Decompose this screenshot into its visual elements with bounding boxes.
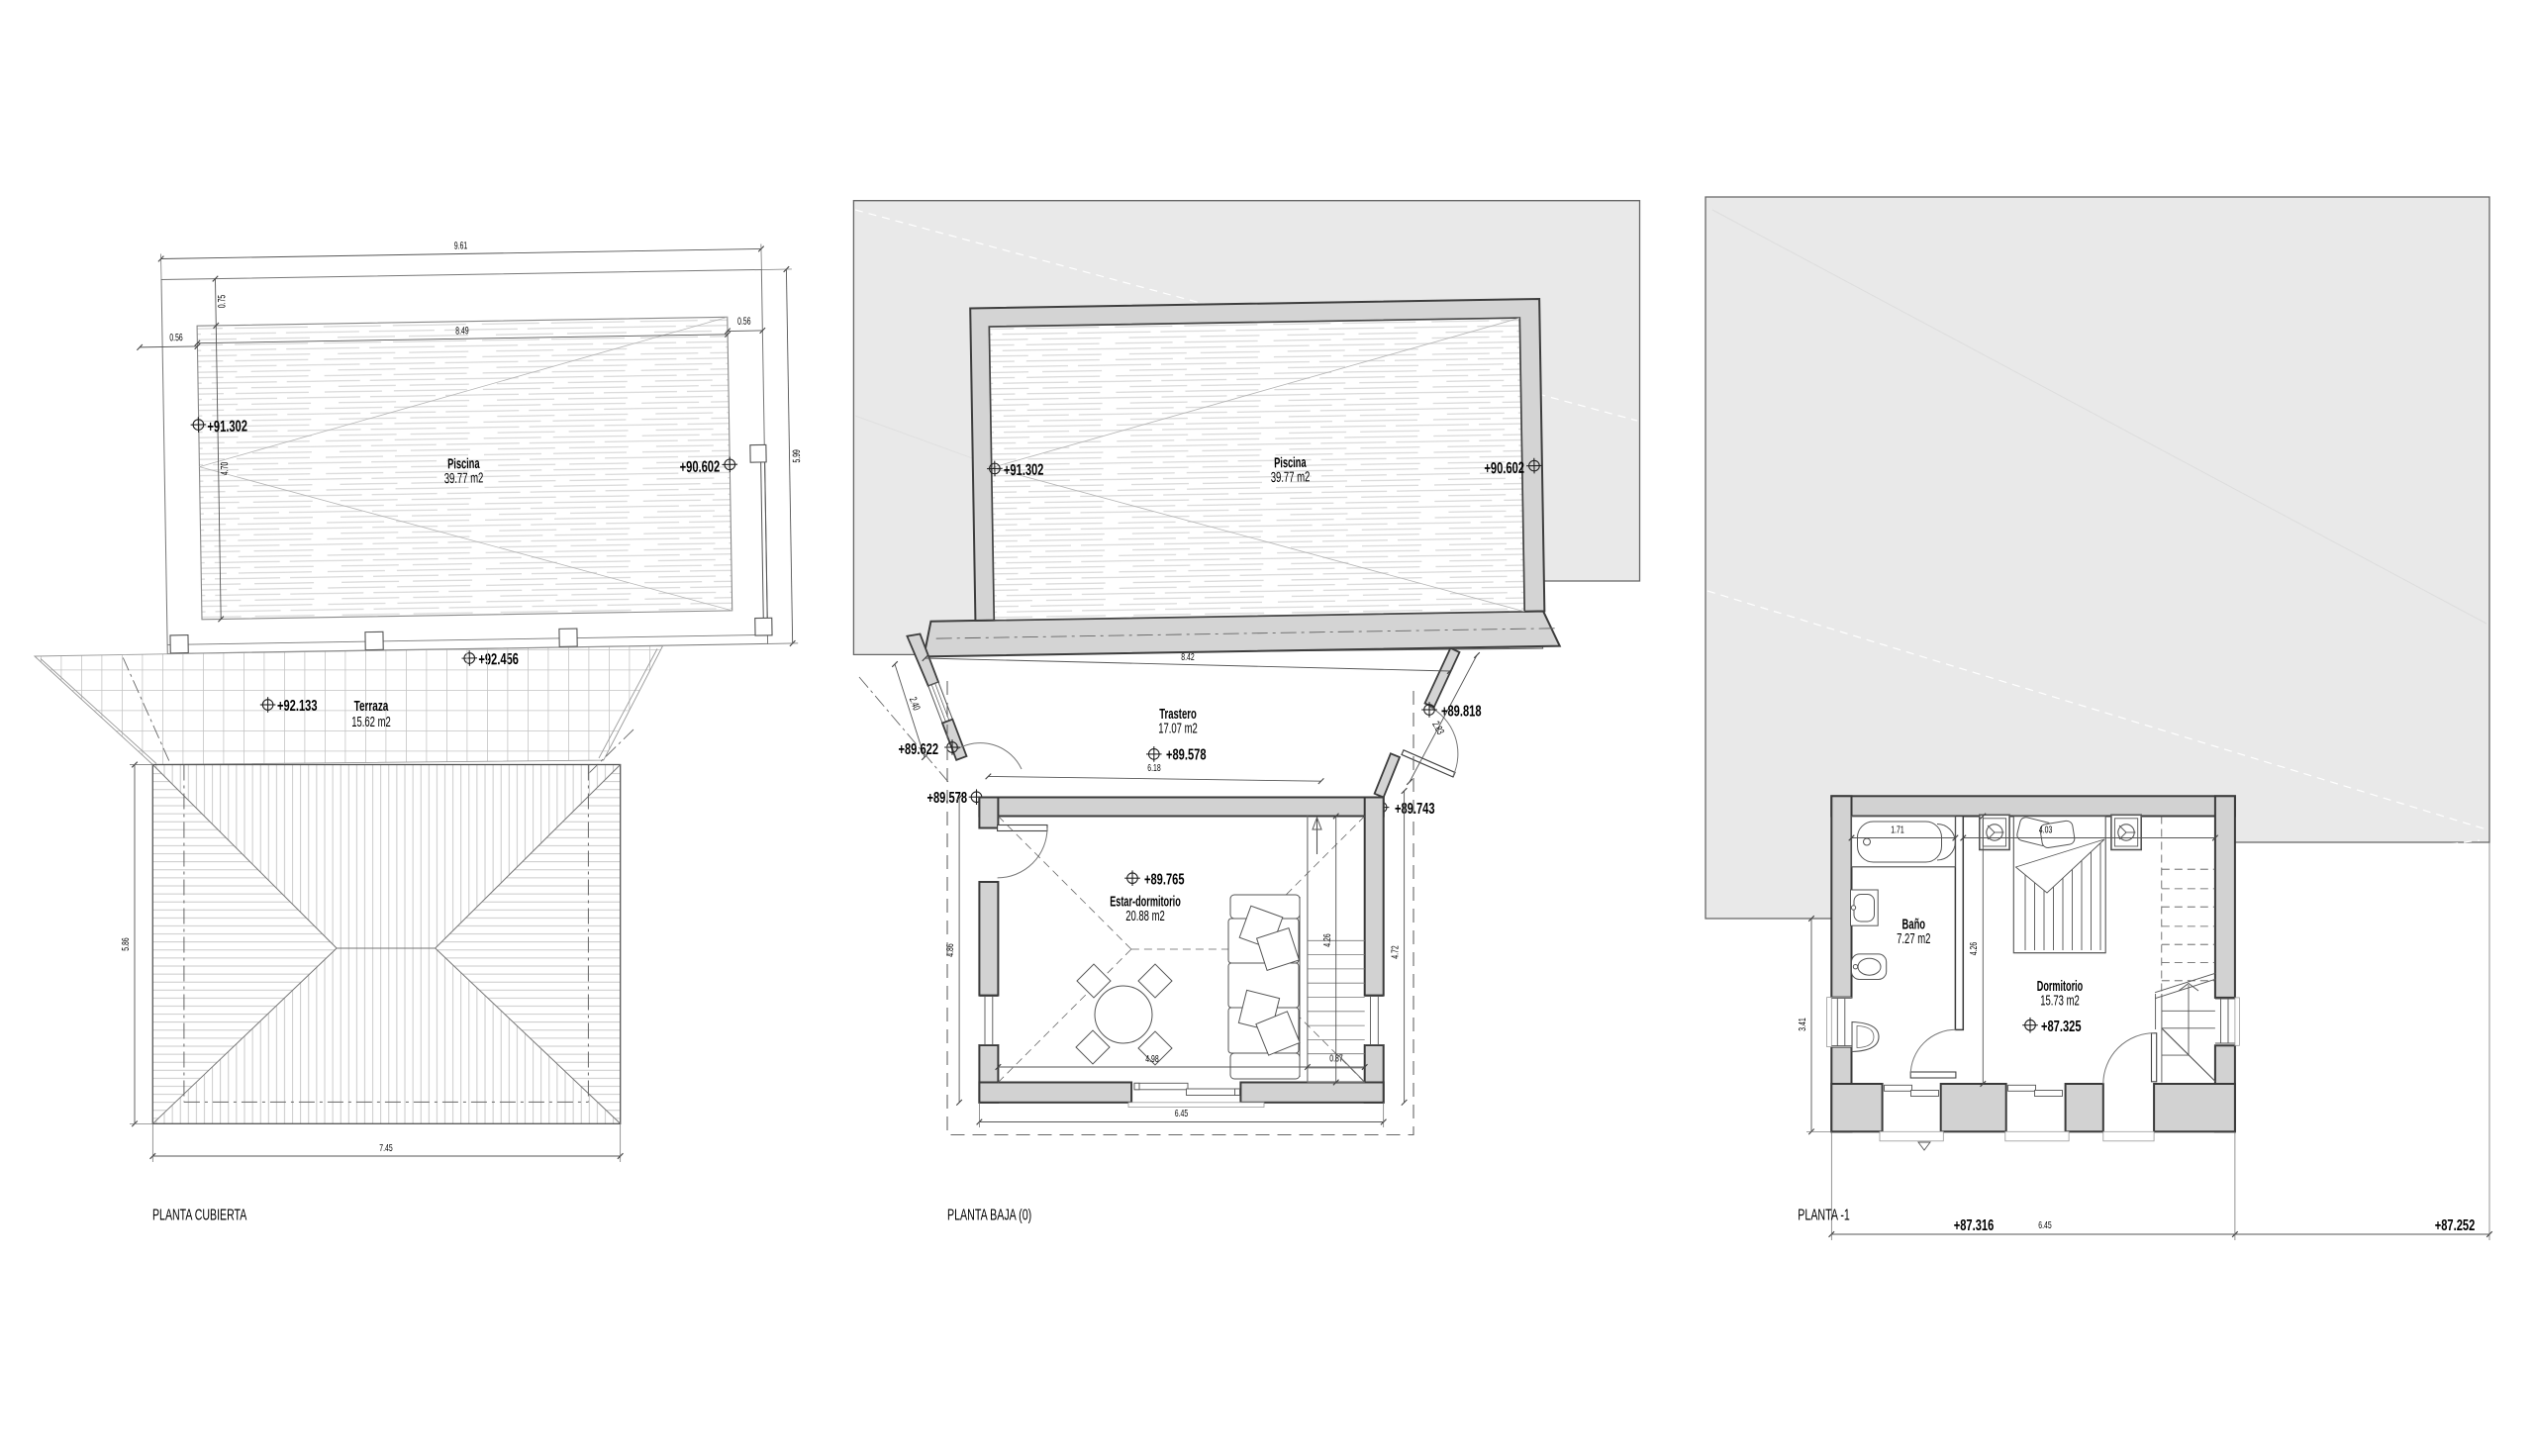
svg-text:+91.302: +91.302 <box>207 419 247 437</box>
svg-text:4.03: 4.03 <box>2039 825 2053 836</box>
svg-text:+87.325: +87.325 <box>2041 1019 2082 1035</box>
svg-text:20.88 m2: 20.88 m2 <box>1125 909 1165 924</box>
svg-text:PLANTA BAJA (0): PLANTA BAJA (0) <box>947 1208 1031 1224</box>
svg-text:7.27 m2: 7.27 m2 <box>1897 931 1930 947</box>
svg-text:0.56: 0.56 <box>169 332 183 343</box>
svg-text:Estar-dormitorio: Estar-dormitorio <box>1110 895 1181 911</box>
svg-text:4.72: 4.72 <box>1390 945 1402 959</box>
svg-text:PLANTA -1: PLANTA -1 <box>1798 1208 1850 1224</box>
svg-text:Terraza: Terraza <box>354 699 389 715</box>
svg-text:4.86: 4.86 <box>944 943 956 957</box>
svg-text:17.07 m2: 17.07 m2 <box>1158 722 1198 737</box>
svg-text:15.62 m2: 15.62 m2 <box>351 715 391 730</box>
svg-text:8.42: 8.42 <box>1181 651 1195 663</box>
svg-text:+89.743: +89.743 <box>1395 801 1435 818</box>
svg-text:Trastero: Trastero <box>1159 707 1197 723</box>
svg-text:+92.133: +92.133 <box>277 698 318 715</box>
svg-text:7.45: 7.45 <box>379 1142 393 1154</box>
svg-text:PLANTA CUBIERTA: PLANTA CUBIERTA <box>152 1208 247 1224</box>
svg-text:+89.765: +89.765 <box>1144 872 1185 889</box>
svg-text:Dormitorio: Dormitorio <box>2037 979 2083 995</box>
svg-text:4.70: 4.70 <box>219 462 231 476</box>
svg-text:4.98: 4.98 <box>1145 1053 1159 1065</box>
svg-text:+89.818: +89.818 <box>1441 704 1482 721</box>
svg-text:+90.602: +90.602 <box>680 458 721 476</box>
svg-text:4.26: 4.26 <box>1968 942 1980 956</box>
svg-text:9.61: 9.61 <box>454 240 468 251</box>
svg-text:39.77 m2: 39.77 m2 <box>1271 469 1311 486</box>
svg-text:4.26: 4.26 <box>1321 933 1333 947</box>
svg-text:+87.316: +87.316 <box>1954 1217 1995 1234</box>
svg-text:+89.578: +89.578 <box>1166 747 1207 764</box>
svg-text:0.56: 0.56 <box>737 316 751 328</box>
svg-text:6.45: 6.45 <box>1175 1108 1189 1119</box>
svg-text:+87.252: +87.252 <box>2435 1217 2476 1234</box>
svg-text:3.41: 3.41 <box>1797 1018 1808 1031</box>
svg-text:0.75: 0.75 <box>216 295 228 309</box>
svg-text:+90.602: +90.602 <box>1484 460 1524 478</box>
svg-text:+91.302: +91.302 <box>1004 462 1044 480</box>
svg-text:1.71: 1.71 <box>1891 825 1904 836</box>
svg-text:0.87: 0.87 <box>1329 1053 1343 1065</box>
svg-text:+89.622: +89.622 <box>899 741 939 758</box>
svg-text:39.77 m2: 39.77 m2 <box>444 470 484 487</box>
svg-text:8.49: 8.49 <box>455 325 469 337</box>
svg-text:6.18: 6.18 <box>1147 762 1161 774</box>
svg-text:Baño: Baño <box>1902 917 1926 932</box>
svg-text:5.99: 5.99 <box>791 449 803 463</box>
svg-text:15.73 m2: 15.73 m2 <box>2040 994 2080 1010</box>
svg-text:5.86: 5.86 <box>120 937 132 951</box>
svg-text:6.45: 6.45 <box>2038 1219 2052 1231</box>
